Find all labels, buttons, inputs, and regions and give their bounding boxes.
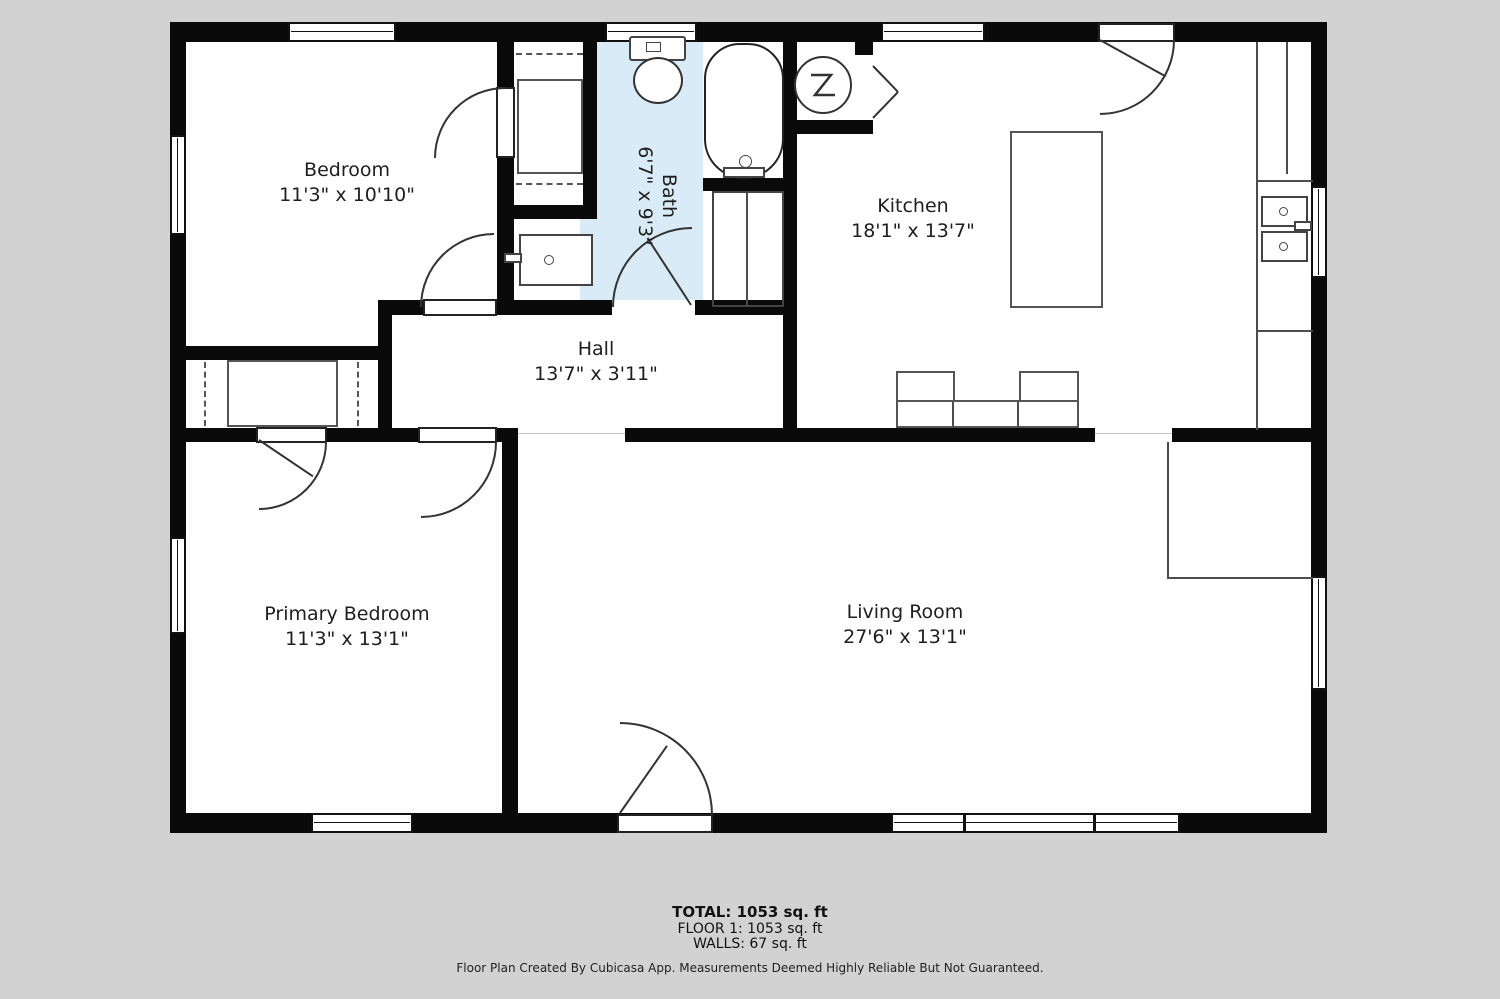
window	[881, 22, 985, 42]
counter-divider	[952, 402, 954, 428]
room-label-kitchen: Kitchen 18'1" x 13'7"	[763, 194, 1063, 244]
window	[288, 22, 396, 42]
room-dims: 18'1" x 13'7"	[763, 219, 1063, 244]
room-name: Bath	[657, 146, 681, 246]
wall-segment	[514, 205, 597, 219]
closet-rail-dashed	[516, 53, 583, 55]
counter-edge	[1286, 42, 1288, 174]
passage-line	[518, 433, 625, 434]
wall-segment	[502, 428, 518, 815]
door-leaf	[617, 814, 713, 833]
window-pane-line	[608, 31, 694, 32]
closet-shelf	[227, 360, 338, 427]
room-label-primary-bedroom: Primary Bedroom 11'3" x 13'1"	[197, 602, 497, 652]
wall-segment	[583, 42, 597, 213]
window	[311, 813, 413, 833]
floor-plan-canvas: Bedroom 11'3" x 10'10" Bath 6'7" x 9'3" …	[0, 0, 1500, 999]
window-divider	[1093, 815, 1096, 831]
stool	[896, 371, 955, 402]
counter-edge	[1256, 180, 1313, 182]
room-dims: 13'7" x 3'11"	[446, 362, 746, 387]
passage-line	[1095, 433, 1172, 434]
summary-floor: FLOOR 1: 1053 sq. ft	[0, 921, 1500, 937]
window	[170, 135, 186, 235]
window-pane-line	[177, 138, 178, 232]
wall-segment	[1172, 428, 1327, 442]
closet-rail-dashed	[516, 183, 583, 185]
counter-edge	[1256, 42, 1258, 430]
window	[1311, 576, 1327, 690]
sink-drain	[544, 255, 554, 265]
sink-vanity-symbol	[519, 234, 593, 286]
room-label-hall: Hall 13'7" x 3'11"	[446, 337, 746, 387]
room-name: Bedroom	[197, 158, 497, 183]
sink-drain	[1279, 207, 1288, 216]
room-name: Primary Bedroom	[197, 602, 497, 627]
water-heater-bolt-icon	[796, 58, 850, 112]
stool	[1019, 371, 1079, 402]
counter-edge	[1256, 330, 1313, 332]
room-name: Kitchen	[763, 194, 1063, 219]
window-divider	[963, 815, 966, 831]
wall-segment	[625, 428, 1095, 442]
window-pane-line	[1318, 579, 1319, 687]
linen-closet-divider	[746, 193, 748, 305]
window-pane-line	[291, 31, 393, 32]
water-heater-symbol	[794, 56, 852, 114]
window-pane-line	[1318, 189, 1319, 275]
wall-segment	[797, 120, 873, 134]
toilet-button	[646, 42, 661, 52]
window-pane-line	[884, 31, 982, 32]
alcove-edge	[1167, 442, 1169, 579]
summary-walls: WALLS: 67 sq. ft	[0, 936, 1500, 952]
room-dims: 6'7" x 9'3"	[633, 146, 657, 246]
footer-disclaimer: Floor Plan Created By Cubicasa App. Meas…	[0, 961, 1500, 975]
window-triple	[891, 813, 1180, 833]
toilet-bowl-symbol	[633, 57, 683, 104]
counter-divider	[1017, 402, 1019, 428]
sink-faucet	[1294, 221, 1312, 231]
window-pane-line	[177, 540, 178, 631]
door-leaf	[256, 427, 327, 443]
wall-segment	[855, 42, 873, 55]
alcove-edge	[1167, 577, 1313, 579]
window	[1311, 186, 1327, 278]
room-name: Hall	[446, 337, 746, 362]
room-dims: 11'3" x 10'10"	[197, 183, 497, 208]
wall-segment	[378, 300, 392, 442]
sink-faucet	[504, 253, 522, 263]
closet-shelf	[517, 79, 583, 174]
room-dims: 11'3" x 13'1"	[197, 627, 497, 652]
room-label-living-room: Living Room 27'6" x 13'1"	[755, 600, 1055, 650]
window	[170, 537, 186, 634]
sink-drain	[1279, 242, 1288, 251]
summary-total: TOTAL: 1053 sq. ft	[0, 903, 1500, 921]
room-dims: 27'6" x 13'1"	[755, 625, 1055, 650]
room-label-bath: Bath 6'7" x 9'3"	[633, 146, 681, 246]
closet-rail-dashed	[204, 362, 206, 426]
wall-segment	[183, 346, 390, 360]
counter	[896, 400, 1079, 428]
door-leaf	[418, 427, 497, 443]
closet-rail-dashed	[357, 362, 359, 426]
window-pane-line	[314, 822, 410, 823]
window-pane-line	[894, 822, 1177, 823]
wall-segment	[497, 42, 514, 307]
bathtub-faucet-base	[723, 167, 765, 178]
room-label-bedroom: Bedroom 11'3" x 10'10"	[197, 158, 497, 208]
room-name: Living Room	[755, 600, 1055, 625]
